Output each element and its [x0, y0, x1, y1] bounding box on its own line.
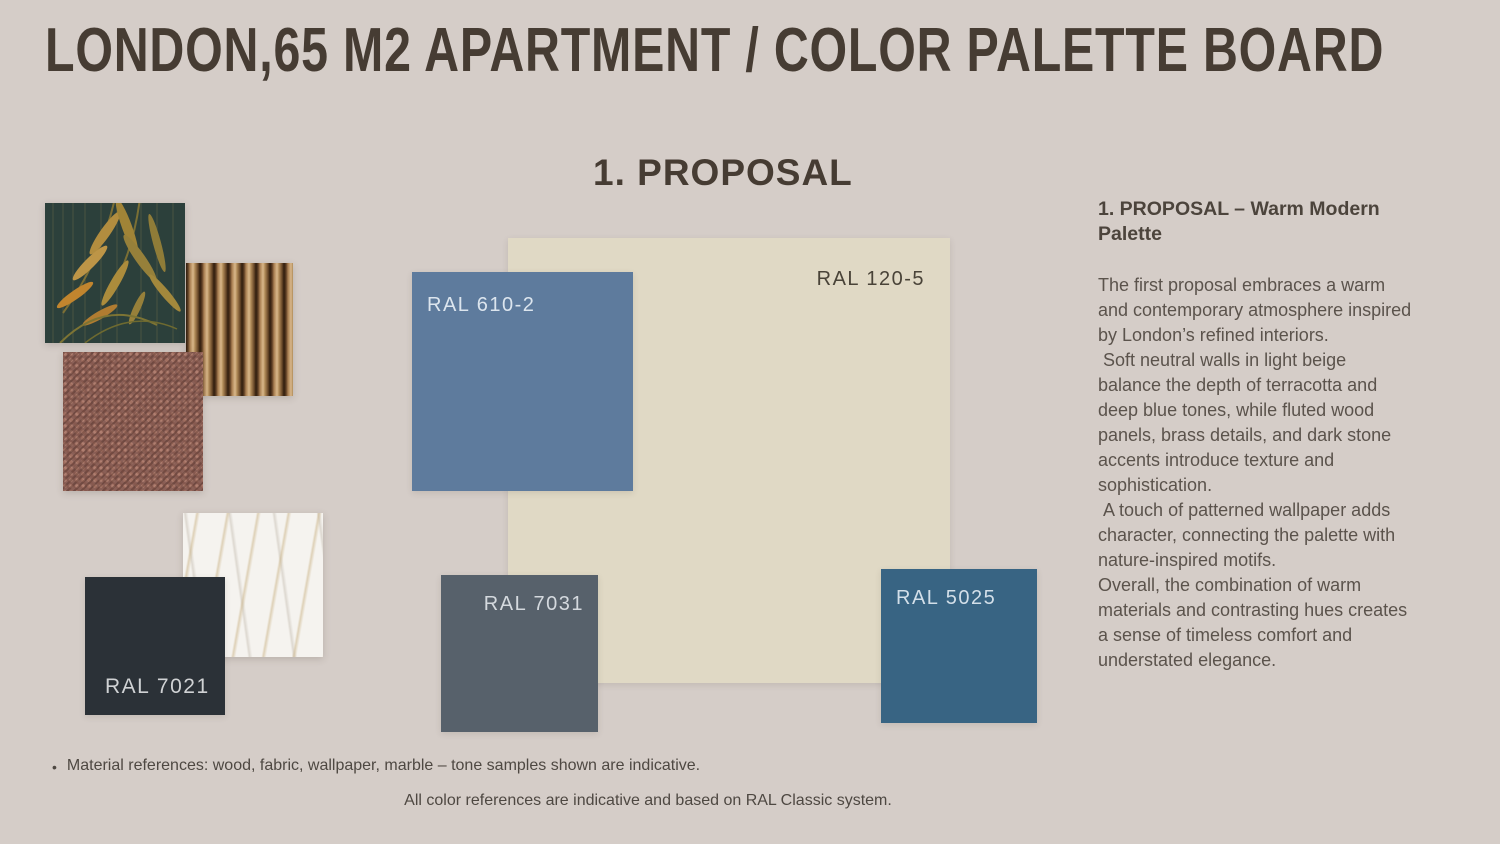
bullet-icon: • — [52, 757, 57, 777]
color-palette-board: LONDON,65 M2 APARTMENT / COLOR PALETTE B… — [0, 0, 1500, 844]
proposal-description: 1. PROPOSAL – Warm Modern Palette The fi… — [1098, 197, 1412, 673]
description-paragraph: The first proposal embraces a warm and c… — [1098, 273, 1412, 348]
ral-code-label: RAL 5025 — [896, 587, 996, 610]
color-swatch-ral-5025: RAL 5025 — [881, 569, 1037, 723]
fabric-swatch — [63, 352, 203, 491]
ral-code-label: RAL 610-2 — [427, 294, 535, 317]
color-swatch-ral-7021: RAL 7021 — [85, 577, 225, 715]
ral-code-label: RAL 7021 — [105, 675, 210, 699]
botanical-wallpaper-pattern — [45, 203, 185, 343]
ral-code-label: RAL 120-5 — [817, 268, 925, 291]
description-paragraph: Soft neutral walls in light beige balanc… — [1098, 348, 1412, 498]
color-swatch-ral-7031: RAL 7031 — [441, 575, 598, 732]
section-heading: 1. PROPOSAL — [593, 153, 853, 194]
description-paragraph: Overall, the combination of warm materia… — [1098, 573, 1412, 673]
material-references-note: • Material references: wood, fabric, wal… — [52, 757, 700, 777]
material-references-text: Material references: wood, fabric, wallp… — [67, 757, 700, 775]
wallpaper-swatch — [45, 203, 185, 343]
page-title: LONDON,65 M2 APARTMENT / COLOR PALETTE B… — [45, 20, 1384, 82]
description-paragraph: A touch of patterned wallpaper adds char… — [1098, 498, 1412, 573]
ral-code-label: RAL 7031 — [484, 593, 584, 616]
ral-disclaimer: All color references are indicative and … — [0, 792, 1296, 810]
description-heading: 1. PROPOSAL – Warm Modern Palette — [1098, 197, 1412, 247]
color-swatch-ral-610-2: RAL 610-2 — [412, 272, 633, 491]
